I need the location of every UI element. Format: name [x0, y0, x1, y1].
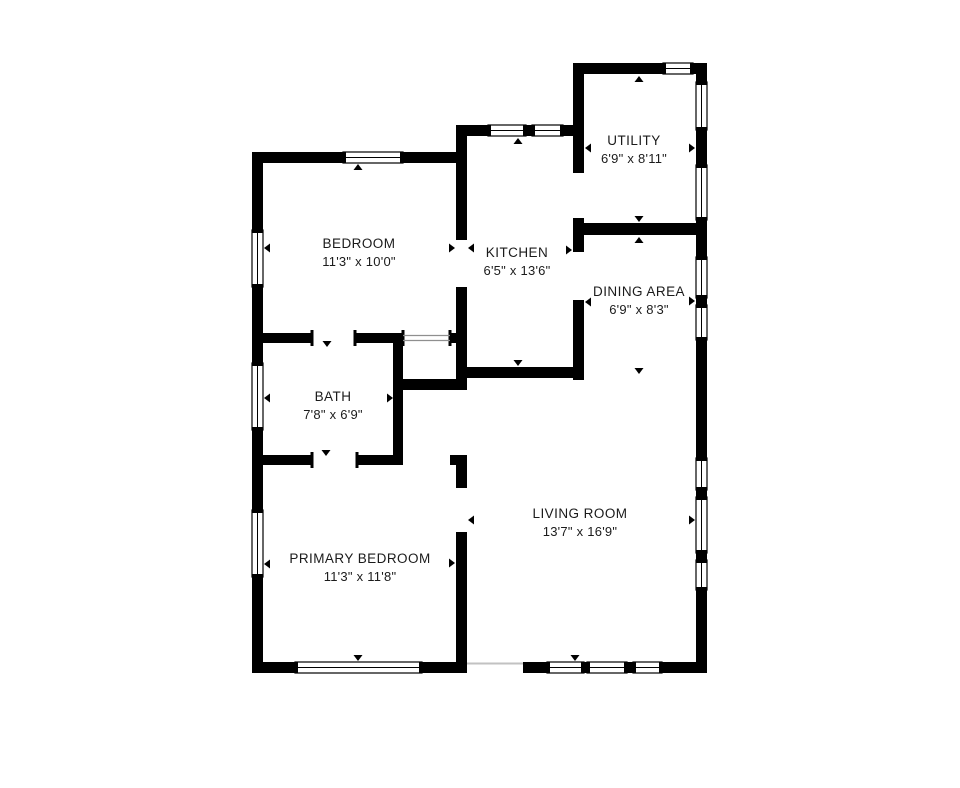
direction-marker: [689, 297, 695, 306]
door-jamb-tick: [356, 452, 359, 468]
direction-marker: [585, 144, 591, 153]
window-end-cap: [252, 574, 263, 577]
door-jamb-tick: [449, 330, 452, 346]
wall-segment: [252, 333, 312, 343]
direction-marker: [514, 138, 523, 144]
window-end-cap: [343, 152, 346, 163]
window-end-cap: [696, 458, 707, 461]
window-end-cap: [252, 284, 263, 287]
wall-segment: [456, 125, 467, 240]
wall-segment: [450, 333, 467, 343]
window-end-cap: [547, 662, 550, 673]
window-end-cap: [560, 125, 563, 136]
door-jamb-tick: [311, 330, 314, 346]
direction-marker: [635, 216, 644, 222]
window-end-cap: [523, 125, 526, 136]
window-end-cap: [696, 257, 707, 260]
window-end-cap: [252, 510, 263, 513]
window-end-cap: [532, 125, 535, 136]
wall-segment: [456, 455, 467, 488]
window-end-cap: [252, 427, 263, 430]
wall-segment: [355, 333, 403, 343]
door-jamb-tick: [354, 330, 357, 346]
direction-marker: [449, 559, 455, 568]
window-end-cap: [633, 662, 636, 673]
floor-plan-drawing: [0, 0, 960, 788]
wall-segment: [573, 218, 584, 252]
direction-marker: [566, 246, 572, 255]
direction-marker: [322, 450, 331, 456]
window-end-cap: [696, 295, 707, 298]
door-jamb-tick: [311, 452, 314, 468]
wall-segment: [573, 63, 584, 173]
window-end-cap: [696, 550, 707, 553]
direction-marker: [354, 164, 363, 170]
direction-marker: [585, 298, 591, 307]
window-end-cap: [696, 487, 707, 490]
wall-segment: [393, 379, 467, 390]
wall-segment: [357, 455, 403, 465]
window-end-cap: [696, 560, 707, 563]
direction-marker: [635, 76, 644, 82]
window-end-cap: [587, 662, 590, 673]
wall-segment: [252, 455, 312, 465]
direction-marker: [264, 244, 270, 253]
door-jamb-tick: [402, 330, 405, 346]
direction-marker: [635, 237, 644, 243]
wall-segment: [573, 223, 707, 235]
window-end-cap: [696, 305, 707, 308]
direction-marker: [264, 560, 270, 569]
window-end-cap: [663, 63, 666, 74]
direction-marker: [354, 655, 363, 661]
window-end-cap: [696, 337, 707, 340]
window-end-cap: [252, 363, 263, 366]
direction-marker: [571, 655, 580, 661]
direction-marker: [449, 244, 455, 253]
direction-marker: [468, 244, 474, 253]
window-end-cap: [295, 662, 298, 673]
window-end-cap: [696, 217, 707, 220]
window-end-cap: [690, 63, 693, 74]
wall-segment: [456, 532, 467, 673]
window-end-cap: [624, 662, 627, 673]
window-end-cap: [696, 82, 707, 85]
window-end-cap: [400, 152, 403, 163]
wall-segment: [456, 367, 584, 378]
window-end-cap: [696, 165, 707, 168]
direction-marker: [514, 360, 523, 366]
direction-marker: [635, 368, 644, 374]
window-end-cap: [659, 662, 662, 673]
direction-marker: [323, 341, 332, 347]
window-end-cap: [696, 587, 707, 590]
floor-plan: BEDROOM11'3" x 10'0"KITCHEN6'5" x 13'6"U…: [0, 0, 960, 788]
window-end-cap: [581, 662, 584, 673]
direction-marker: [264, 394, 270, 403]
direction-marker: [468, 516, 474, 525]
window-end-cap: [419, 662, 422, 673]
window-end-cap: [696, 127, 707, 130]
window-end-cap: [696, 497, 707, 500]
window-end-cap: [488, 125, 491, 136]
wall-segment: [393, 333, 403, 465]
window-end-cap: [252, 230, 263, 233]
direction-marker: [689, 144, 695, 153]
direction-marker: [689, 516, 695, 525]
direction-marker: [387, 394, 393, 403]
